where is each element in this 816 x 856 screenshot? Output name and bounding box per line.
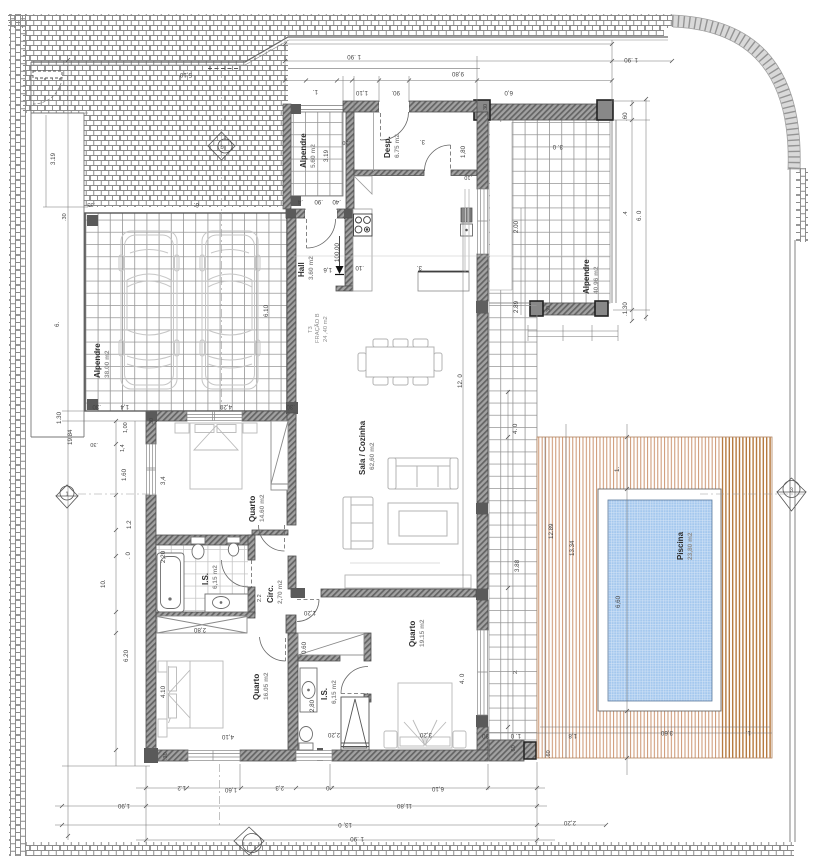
svg-text:24 ,40 m2: 24 ,40 m2 [323,316,329,342]
svg-text:6.75 m2: 6.75 m2 [394,134,401,158]
svg-text:4.10: 4.10 [160,685,167,698]
svg-text:Alpendre: Alpendre [93,343,102,378]
svg-text:5,10: 5,10 [179,71,192,78]
svg-text:40.96 m2: 40.96 m2 [593,266,600,294]
svg-text:Alpendre: Alpendre [299,133,308,168]
svg-text:2,80: 2,80 [193,626,206,633]
svg-text:1.30: 1.30 [56,411,63,424]
svg-text:1,90: 1,90 [117,802,130,809]
svg-text:30: 30 [483,104,489,110]
svg-text:1.2: 1.2 [126,520,133,529]
svg-text:Quarto: Quarto [252,674,261,700]
svg-text:12.89: 12.89 [548,523,555,539]
svg-text:. 0: . 0 [125,552,132,559]
svg-text:1,60: 1,60 [224,786,237,793]
svg-text:.30: .30 [163,752,169,760]
svg-text:3. 0: 3. 0 [552,143,563,150]
svg-text:2.2: 2.2 [257,594,263,602]
svg-text:Sala / Cozinha: Sala / Cozinha [358,420,367,475]
svg-text:I.S.: I.S. [320,688,329,700]
svg-text:3,4: 3,4 [160,476,167,485]
svg-text:1,20: 1,20 [303,609,316,616]
svg-text:1.: 1. [614,467,621,472]
svg-text:13.34: 13.34 [569,540,576,556]
svg-text:38.00 m2: 38.00 m2 [104,350,111,378]
svg-text:6.: 6. [194,201,199,208]
svg-text:2,70 m2: 2,70 m2 [277,580,284,604]
svg-text:3.60 m2: 3.60 m2 [308,256,315,280]
svg-text:.4: .4 [623,211,629,216]
svg-text:.30: .30 [342,139,350,145]
svg-text:6,10: 6,10 [431,785,444,792]
svg-text:4. 0: 4. 0 [512,423,519,434]
svg-text:6,15 m2: 6,15 m2 [212,565,219,589]
svg-text:2,3: 2,3 [275,784,284,791]
svg-text:.33: .33 [87,201,95,207]
svg-text:6,15 m2: 6,15 m2 [331,680,338,704]
svg-text:Quarto: Quarto [408,621,417,647]
svg-text:3.19: 3.19 [323,149,330,162]
svg-text:1,10: 1,10 [355,89,368,96]
svg-text:Desp.: Desp. [383,136,392,158]
svg-text:I.S.: I.S. [201,573,210,585]
svg-text:11,80: 11,80 [396,802,412,809]
svg-text:.1.30: .1.30 [622,302,629,316]
svg-text:Quarto: Quarto [248,496,257,522]
svg-text:90.: 90. [391,89,400,96]
svg-text:3.: 3. [417,264,422,271]
svg-text:.60: .60 [546,750,552,758]
svg-text:c: c [249,842,252,848]
svg-text:1 .90: 1 .90 [624,56,638,63]
svg-text:5.60 m2: 5.60 m2 [310,144,317,168]
svg-text:62,60 m2: 62,60 m2 [369,442,376,470]
svg-text:Circ.: Circ. [266,585,275,603]
svg-text:2,20: 2,20 [563,819,576,826]
svg-text:2,20: 2,20 [160,550,167,563]
svg-text:1.: 1. [313,88,318,95]
svg-text:6.20: 6.20 [123,649,130,662]
svg-text:3.88: 3.88 [514,559,521,572]
svg-text:2,20: 2,20 [327,731,340,738]
svg-text:30: 30 [482,732,489,739]
svg-text:1,4: 1,4 [120,444,126,452]
svg-text:.30: .30 [62,213,68,221]
svg-text:4. 0: 4. 0 [459,673,466,684]
svg-text:3.19: 3.19 [50,152,57,165]
svg-text:.10: .10 [464,174,472,180]
svg-text:3.: 3. [420,138,425,145]
svg-text:Hall: Hall [297,262,306,277]
svg-text:6,60: 6,60 [615,595,622,608]
svg-text:6.10: 6.10 [263,304,270,317]
svg-text:1,4: 1,4 [120,403,129,410]
svg-text:Alpendre: Alpendre [582,259,591,294]
svg-text:30: 30 [149,418,155,424]
svg-text:19.15 m2: 19.15 m2 [419,619,426,647]
svg-text:13, 0: 13, 0 [338,821,352,828]
svg-text:3,20: 3,20 [419,731,432,738]
svg-text:.60: .60 [622,112,629,121]
svg-text:2.: 2. [513,669,519,674]
svg-text:2.00: 2.00 [513,220,520,233]
svg-text:14.60 m2: 14.60 m2 [259,494,266,522]
svg-text:.30: .30 [90,441,98,447]
svg-text:6.: 6. [54,322,61,327]
svg-text:2.89: 2.89 [513,300,520,313]
svg-text:6. 0: 6. 0 [636,210,643,221]
svg-text:1 .90: 1 .90 [350,835,364,842]
svg-text:9,80: 9,80 [451,70,464,77]
svg-text:Piscina: Piscina [676,531,685,560]
svg-text:1,6: 1,6 [323,266,332,273]
svg-text:.90: .90 [314,198,323,205]
svg-text:1.60: 1.60 [121,468,128,481]
svg-text:.60: .60 [511,745,517,753]
svg-text:.40: .40 [332,198,341,205]
svg-text:1,00: 1,00 [123,422,129,433]
svg-text:1.: 1. [746,729,751,736]
svg-text:.30: .30 [92,403,101,410]
svg-text:.4: .4 [297,198,303,205]
svg-text:6,0: 6,0 [504,89,513,96]
svg-text:0.60: 0.60 [301,641,308,654]
svg-text:FRAÇÃO B: FRAÇÃO B [314,313,321,343]
svg-text:12. 0: 12. 0 [457,374,464,388]
svg-text:T3: T3 [308,326,314,333]
svg-text:.10: .10 [355,264,364,271]
svg-text:1. 0: 1. 0 [510,732,521,739]
svg-text:1,80: 1,80 [460,145,467,158]
svg-text:100.00: 100.00 [334,243,341,262]
svg-text:16.05 m2: 16.05 m2 [263,672,270,700]
svg-text:.30: .30 [286,403,295,410]
svg-text:1.2: 1.2 [177,784,186,791]
svg-text:4,10: 4,10 [221,733,234,740]
svg-text:1,8: 1,8 [568,732,577,739]
svg-text:30: 30 [546,306,552,312]
svg-text:19.84: 19.84 [67,429,74,445]
svg-text:. 0: . 0 [326,784,333,791]
svg-text:1 .90: 1 .90 [347,53,361,60]
svg-text:23,80 m2: 23,80 m2 [687,532,694,560]
svg-text:3,60: 3,60 [660,729,673,736]
svg-text:2,80: 2,80 [309,699,316,712]
svg-text:10.: 10. [100,579,107,588]
